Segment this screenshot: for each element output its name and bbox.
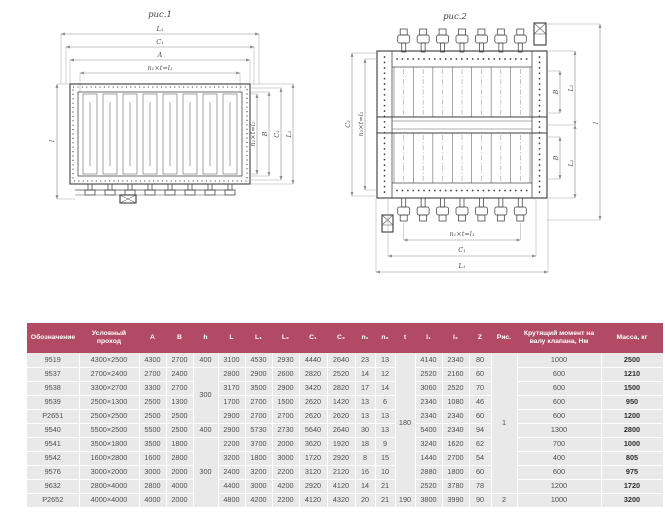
fig1-dim-C1: C₁ [156,38,164,46]
cell: 3500 [139,437,166,451]
cell: 70 [469,381,491,395]
table-row: 96322800×4000280040004400300042002920412… [27,479,663,493]
table-row: Р26512500×250025002500290027002700262026… [27,409,663,423]
col-header: t [395,323,415,353]
fig1-dim-A: A [157,51,163,59]
page: рис.1 L₁ C₁ A n₁×t=l₁ l [0,0,665,512]
cell: 2520 [327,367,355,381]
cell: 16 [355,465,375,479]
cell: 4200 [272,479,299,493]
cell: 4530 [245,353,272,367]
cell: 4400 [218,479,245,493]
cell: 2700×2400 [79,367,139,381]
cell: 2000 [272,437,299,451]
spec-table: ОбозначениеУсловный проходABhLL₁L₂C₁C₂n₁… [27,323,664,508]
cell: 2800 [218,367,245,381]
cell: 3060 [415,381,442,395]
col-header: L₁ [245,323,272,353]
cell: 1500 [272,395,299,409]
cell: 1000 [601,437,663,451]
cell: 9537 [27,367,79,381]
cell: 2500×2500 [79,409,139,423]
col-header: B [166,323,193,353]
cell: 2920 [327,451,355,465]
fig1-dim-l: l [48,140,56,142]
table-row: 95194300×2500430027004003100453029304440… [27,353,663,367]
col-header: n₁ [355,323,375,353]
cell: 2340 [442,353,469,367]
cell: 30 [355,423,375,437]
fig1-louvers [83,94,237,174]
fig2-dim-L2-bottom: L₂ [567,159,575,167]
cell: 2820 [299,367,327,381]
fig1-dim-L2: L₂ [285,130,293,138]
cell: 2730 [272,423,299,437]
fig2-dim-l: l [592,122,600,124]
cell: 2500 [166,423,193,437]
cell: 9540 [27,423,79,437]
cell: 2700 [245,395,272,409]
cell: 3300×2700 [79,381,139,395]
table-row: 95421600×2800160028003200180030001720292… [27,451,663,465]
cell: 2520 [415,479,442,493]
cell: 4000 [166,479,193,493]
cell: 3500×1800 [79,437,139,451]
cell: Р2651 [27,409,79,423]
cell: 9538 [27,381,79,395]
cell: 2500 [139,409,166,423]
cell: 2700 [166,353,193,367]
cell: 9542 [27,451,79,465]
cell: 4120 [327,479,355,493]
cell: 94 [469,423,491,437]
cell: 2500 [601,353,663,367]
table-row: 95763000×2000300020002400320022003120212… [27,465,663,479]
cell: 3780 [442,479,469,493]
cell: 3990 [442,493,469,507]
cell: 5500×2500 [79,423,139,437]
cell: 4120 [299,493,327,507]
cell: 3200 [218,451,245,465]
cell: 2500×1300 [79,395,139,409]
cell: 1500 [601,381,663,395]
fig2-dim-L1: L₁ [458,262,466,270]
cell: 3000×2000 [79,465,139,479]
cell: 2640 [327,353,355,367]
cell: 1720 [601,479,663,493]
cell: 54 [469,451,491,465]
cell: 3500 [245,381,272,395]
col-header: Масса, кг [601,323,663,353]
cell: 4140 [415,353,442,367]
col-header: Z [469,323,491,353]
cell: 4440 [299,353,327,367]
cell: 2880 [415,465,442,479]
cell: 1600×2800 [79,451,139,465]
cell: 2800×4000 [79,479,139,493]
cell: 3620 [299,437,327,451]
cell: 1920 [327,437,355,451]
cell: 600 [517,409,601,423]
cell: 3700 [245,437,272,451]
cell: 975 [601,465,663,479]
cell: 9576 [27,465,79,479]
fig2-dim-B-bottom: B [552,155,560,161]
fig1-dim-B: B [261,131,269,137]
cell: 3200 [245,465,272,479]
cell: 9 [375,437,395,451]
cell: 600 [517,381,601,395]
cell: 1800 [245,451,272,465]
cell: 2520 [442,381,469,395]
cell: 60 [469,465,491,479]
cell: 2400 [166,367,193,381]
cell: 2000 [166,465,193,479]
cell: 2400 [218,465,245,479]
cell: 4300 [139,353,166,367]
col-header: L [218,323,245,353]
cell: 2120 [327,465,355,479]
cell: 2200 [272,465,299,479]
cell: 4000×4000 [79,493,139,507]
fig1-dim-n1t: n₁×t=l₁ [148,64,173,72]
cell: 805 [601,451,663,465]
fig2-title: рис.2 [443,12,467,22]
cell: 5500 [139,423,166,437]
cell: 3300 [139,381,166,395]
cell: 23 [355,353,375,367]
cell: 2340 [442,409,469,423]
col-header: Обозначение [27,323,79,353]
cell: 14 [355,479,375,493]
cell: 2340 [415,409,442,423]
cell: 1300 [517,423,601,437]
cell: Р2652 [27,493,79,507]
cell: 2700 [139,367,166,381]
cell: 90 [469,493,491,507]
cell: 78 [469,479,491,493]
cell: 2900 [272,381,299,395]
cell: 3000 [245,479,272,493]
cell: 400 [193,423,218,437]
cell: 1300 [166,395,193,409]
fig2-dim-n2t: n₂×t=l₂ [357,111,365,136]
cell: 2200 [218,437,245,451]
table-row: 95392500×1300250013001700270015002620142… [27,395,663,409]
cell: 80 [469,353,491,367]
cell: 3000 [272,451,299,465]
cell: 13 [355,409,375,423]
cell: 2800 [139,479,166,493]
cell: 60 [469,367,491,381]
cell: 12 [375,367,395,381]
cell: 1000 [517,493,601,507]
fig2-louvers [394,67,530,183]
cell: 9541 [27,437,79,451]
cell: 1720 [299,451,327,465]
cell: 5640 [299,423,327,437]
cell: 5400 [415,423,442,437]
cell: 2340 [442,423,469,437]
cell: 4800 [218,493,245,507]
cell: 4320 [327,493,355,507]
cell: 13 [375,423,395,437]
fig2-dim-L2-top: L₂ [567,84,575,92]
cell: 17 [355,381,375,395]
fig1-dim-C2: C₂ [273,130,281,138]
cell: 190 [395,493,415,507]
cell: 9632 [27,479,79,493]
fig1-bolt-holes [73,87,247,181]
cell: 13 [375,409,395,423]
cell: 2900 [245,367,272,381]
cell: 46 [469,395,491,409]
table-row: 95383300×2700330027003170350029003420282… [27,381,663,395]
table-header-row: ОбозначениеУсловный проходABhLL₁L₂C₁C₂n₁… [27,323,663,353]
fig1-dim-n2t: n₂×t=l₂ [249,121,257,146]
fig1-title: рис.1 [148,10,172,20]
cell: 21 [375,493,395,507]
col-header: Условный проход [79,323,139,353]
cell: 2900 [218,409,245,423]
table-row: 95372700×2400270024003002800290026002820… [27,367,663,381]
cell: 6 [375,395,395,409]
col-header: h [193,323,218,353]
fig2-actuator-bolts [398,29,527,221]
cell: 2500 [166,409,193,423]
cell: 1080 [442,395,469,409]
cell: 1800 [166,437,193,451]
cell: 20 [355,493,375,507]
cell: 1210 [601,367,663,381]
cell: 2920 [299,479,327,493]
cell: 10 [375,465,395,479]
col-header: A [139,323,166,353]
table-row: Р26524000×400040002000480042002200412043… [27,493,663,507]
fig2-dim-B-top: B [552,89,560,95]
cell: 2640 [327,423,355,437]
table-row: 95405500×2500550025004002900573027305640… [27,423,663,437]
cell: 2800 [601,423,663,437]
cell: 2160 [442,367,469,381]
cell: 2620 [327,409,355,423]
cell: 3120 [299,465,327,479]
figure-2-drawing: рис.2 C₂ n₂×t=l₂ B [342,3,657,301]
cell: 600 [517,465,601,479]
col-header: l₁ [415,323,442,353]
cell: 1440 [415,451,442,465]
cell: 4300×2500 [79,353,139,367]
col-header: n₂ [375,323,395,353]
cell: 13 [355,395,375,409]
cell: 3000 [139,465,166,479]
col-header: C₂ [327,323,355,353]
cell: 2620 [299,395,327,409]
cell: 3100 [218,353,245,367]
cell: 300 [193,437,218,507]
cell: 180 [395,353,415,493]
fig2-dim-n1t: n₁×t=l₁ [450,230,475,238]
cell: 21 [375,479,395,493]
cell: 3200 [601,493,663,507]
cell: 1420 [327,395,355,409]
cell: 3170 [218,381,245,395]
fig1-dim-L1: L₁ [156,25,164,33]
cell: 300 [193,367,218,423]
cell: 2200 [272,493,299,507]
cell: 3800 [415,493,442,507]
cell: 2820 [327,381,355,395]
cell: 62 [469,437,491,451]
col-header: C₁ [299,323,327,353]
cell: 2800 [166,451,193,465]
cell: 2700 [166,381,193,395]
fig1-shaft-linkage [85,184,235,195]
table-row: 95413500×1800350018003002200370020003620… [27,437,663,451]
cell: 2900 [218,423,245,437]
cell: 9539 [27,395,79,409]
cell: 950 [601,395,663,409]
cell: 18 [355,437,375,451]
cell: 400 [517,451,601,465]
cell: 2340 [415,395,442,409]
cell: 14 [375,381,395,395]
cell: 4200 [245,493,272,507]
col-header: l₂ [442,323,469,353]
col-header: Крутящий момент на валу клапана, Нм [517,323,601,353]
cell: 13 [375,353,395,367]
cell: 2 [491,493,517,507]
cell: 600 [517,367,601,381]
fig2-dim-C2: C₂ [344,120,352,128]
cell: 2620 [299,409,327,423]
cell: 1 [491,353,517,493]
cell: 2500 [139,395,166,409]
cell: 1200 [517,479,601,493]
cell: 2600 [272,367,299,381]
cell: 3240 [415,437,442,451]
cell: 8 [355,451,375,465]
cell: 2930 [272,353,299,367]
cell: 5730 [245,423,272,437]
cell: 1600 [139,451,166,465]
col-header: Рис. [491,323,517,353]
cell: 1700 [218,395,245,409]
fig2-dim-C1: C₁ [458,246,466,254]
cell: 9519 [27,353,79,367]
cell: 1620 [442,437,469,451]
col-header: L₂ [272,323,299,353]
cell: 60 [469,409,491,423]
cell: 15 [375,451,395,465]
cell: 4000 [139,493,166,507]
cell: 1800 [442,465,469,479]
cell: 600 [517,395,601,409]
figure-1-drawing: рис.1 L₁ C₁ A n₁×t=l₁ l [25,4,315,216]
cell: 2520 [415,367,442,381]
cell: 2700 [442,451,469,465]
cell: 2700 [245,409,272,423]
cell: 700 [517,437,601,451]
cell: 2700 [272,409,299,423]
cell: 1000 [517,353,601,367]
cell: 2000 [166,493,193,507]
cell: 1200 [601,409,663,423]
cell: 3420 [299,381,327,395]
cell: 400 [193,353,218,367]
cell: 14 [355,367,375,381]
